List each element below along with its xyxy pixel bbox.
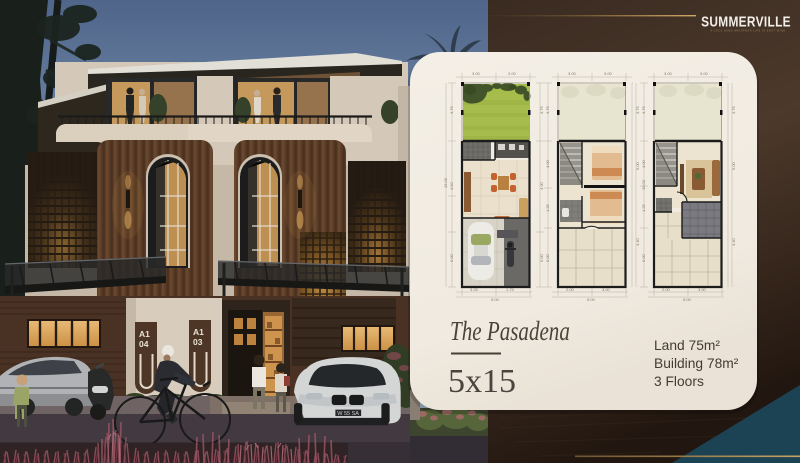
svg-text:5.00: 5.00 bbox=[635, 161, 640, 170]
svg-text:5.00: 5.00 bbox=[587, 297, 596, 302]
svg-text:4.75: 4.75 bbox=[545, 105, 550, 114]
svg-text:5.00: 5.00 bbox=[491, 297, 500, 302]
svg-text:1.25: 1.25 bbox=[641, 203, 646, 212]
svg-text:4.00: 4.00 bbox=[539, 181, 544, 190]
svg-text:A COOL WIND WHISPERS LIFE IN E: A COOL WIND WHISPERS LIFE IN EAST WIND bbox=[710, 29, 785, 33]
svg-text:2.00: 2.00 bbox=[508, 71, 517, 76]
svg-text:4.40: 4.40 bbox=[731, 237, 736, 246]
svg-text:3.00: 3.00 bbox=[472, 71, 481, 76]
svg-text:3.00: 3.00 bbox=[604, 71, 613, 76]
svg-text:4.00: 4.00 bbox=[641, 159, 646, 168]
svg-text:5x15: 5x15 bbox=[448, 363, 516, 400]
svg-text:4.75: 4.75 bbox=[731, 105, 736, 114]
svg-text:15.00: 15.00 bbox=[641, 179, 646, 190]
svg-text:4.00: 4.00 bbox=[545, 159, 550, 168]
svg-text:5.00: 5.00 bbox=[449, 253, 454, 262]
svg-text:5.00: 5.00 bbox=[539, 253, 544, 262]
svg-text:The Pasadena: The Pasadena bbox=[450, 317, 570, 347]
svg-text:3.00: 3.00 bbox=[698, 287, 707, 292]
svg-text:1.75: 1.75 bbox=[506, 287, 515, 292]
svg-text:4.75: 4.75 bbox=[635, 105, 640, 114]
svg-text:2.00: 2.00 bbox=[662, 287, 671, 292]
svg-text:5.00: 5.00 bbox=[731, 161, 736, 170]
svg-text:4.75: 4.75 bbox=[641, 105, 646, 114]
svg-text:5.00: 5.00 bbox=[545, 253, 550, 262]
svg-text:5.00: 5.00 bbox=[641, 253, 646, 262]
svg-text:3.00: 3.00 bbox=[664, 71, 673, 76]
svg-text:3.00: 3.00 bbox=[568, 71, 577, 76]
svg-text:3 Floors: 3 Floors bbox=[654, 374, 704, 389]
svg-text:4.40: 4.40 bbox=[635, 237, 640, 246]
svg-text:4.75: 4.75 bbox=[449, 105, 454, 114]
svg-text:SUMMERVILLE: SUMMERVILLE bbox=[701, 13, 791, 29]
svg-text:4.75: 4.75 bbox=[539, 105, 544, 114]
svg-text:15.00: 15.00 bbox=[443, 177, 448, 188]
svg-text:4.50: 4.50 bbox=[449, 181, 454, 190]
svg-text:1.25: 1.25 bbox=[545, 203, 550, 212]
svg-text:5.00: 5.00 bbox=[683, 297, 692, 302]
svg-text:3.00: 3.00 bbox=[700, 71, 709, 76]
svg-text:2.00: 2.00 bbox=[566, 287, 575, 292]
svg-text:3.00: 3.00 bbox=[602, 287, 611, 292]
svg-text:3.25: 3.25 bbox=[470, 287, 479, 292]
svg-text:Land 75m²: Land 75m² bbox=[654, 338, 720, 353]
svg-text:Building 78m²: Building 78m² bbox=[654, 356, 739, 371]
